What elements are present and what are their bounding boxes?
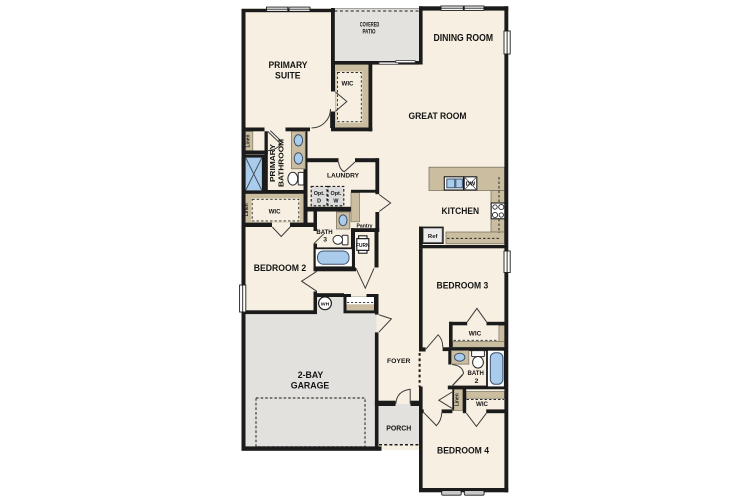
svg-text:KITCHEN: KITCHEN: [442, 206, 480, 216]
svg-text:2: 2: [475, 378, 479, 385]
svg-text:Ref: Ref: [428, 234, 438, 240]
svg-text:BEDROOM 3: BEDROOM 3: [437, 281, 489, 291]
svg-text:FURN: FURN: [356, 243, 370, 249]
svg-text:BEDROOM 2: BEDROOM 2: [254, 263, 307, 273]
svg-text:DINING ROOM: DINING ROOM: [434, 33, 494, 44]
svg-text:WIC: WIC: [269, 208, 281, 215]
svg-text:SUITE: SUITE: [275, 71, 301, 81]
svg-text:PRIMARY: PRIMARY: [270, 144, 277, 182]
svg-text:GREAT ROOM: GREAT ROOM: [409, 111, 467, 121]
svg-text:PATIO: PATIO: [363, 29, 376, 36]
svg-text:Pantry: Pantry: [357, 223, 374, 229]
svg-text:PORCH: PORCH: [386, 423, 411, 432]
svg-text:WIC: WIC: [476, 401, 488, 408]
svg-text:Linen: Linen: [245, 134, 251, 147]
svg-text:LAUNDRY: LAUNDRY: [327, 173, 359, 180]
svg-text:WH: WH: [321, 301, 330, 306]
svg-text:BEDROOM 4: BEDROOM 4: [437, 445, 489, 455]
svg-text:Opt.: Opt.: [314, 191, 325, 197]
svg-text:COVERED: COVERED: [360, 22, 380, 29]
svg-text:BATH: BATH: [468, 370, 484, 377]
svg-text:Opt.: Opt.: [331, 191, 342, 197]
svg-text:BATHROOM: BATHROOM: [279, 139, 286, 187]
svg-text:2-BAY: 2-BAY: [298, 370, 324, 380]
svg-text:DW: DW: [466, 182, 476, 188]
svg-text:FOYER: FOYER: [387, 358, 410, 365]
svg-text:GARAGE: GARAGE: [291, 381, 330, 391]
svg-text:WIC: WIC: [469, 330, 482, 337]
svg-text:D: D: [317, 199, 321, 205]
svg-text:WIC: WIC: [342, 81, 354, 88]
svg-text:3: 3: [323, 237, 327, 244]
svg-text:Linen: Linen: [454, 393, 460, 406]
svg-text:Linen: Linen: [244, 203, 250, 216]
svg-text:BATH: BATH: [316, 229, 332, 236]
svg-text:PRIMARY: PRIMARY: [269, 60, 308, 70]
